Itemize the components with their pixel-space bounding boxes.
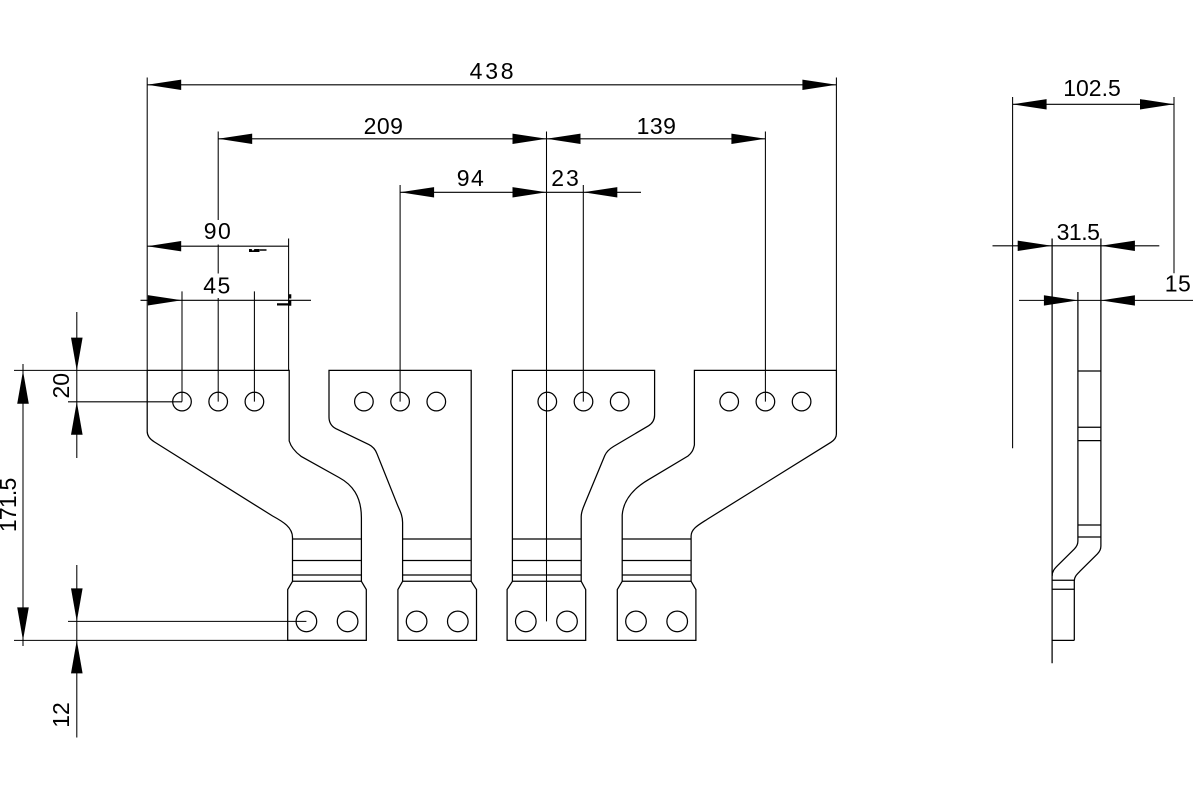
svg-text:23: 23 (551, 165, 581, 191)
svg-text:209: 209 (364, 113, 404, 139)
svg-text:31.5: 31.5 (1057, 219, 1100, 245)
svg-text:139: 139 (637, 113, 677, 139)
svg-text:94: 94 (457, 165, 486, 191)
svg-text:90: 90 (204, 218, 233, 244)
svg-text:15: 15 (1165, 271, 1192, 297)
svg-text:45: 45 (203, 273, 232, 299)
svg-text:102.5: 102.5 (1063, 75, 1121, 101)
svg-text:438: 438 (470, 58, 517, 84)
svg-text:171.5: 171.5 (0, 479, 21, 533)
svg-text:20: 20 (48, 373, 74, 399)
svg-text:12: 12 (48, 702, 74, 728)
